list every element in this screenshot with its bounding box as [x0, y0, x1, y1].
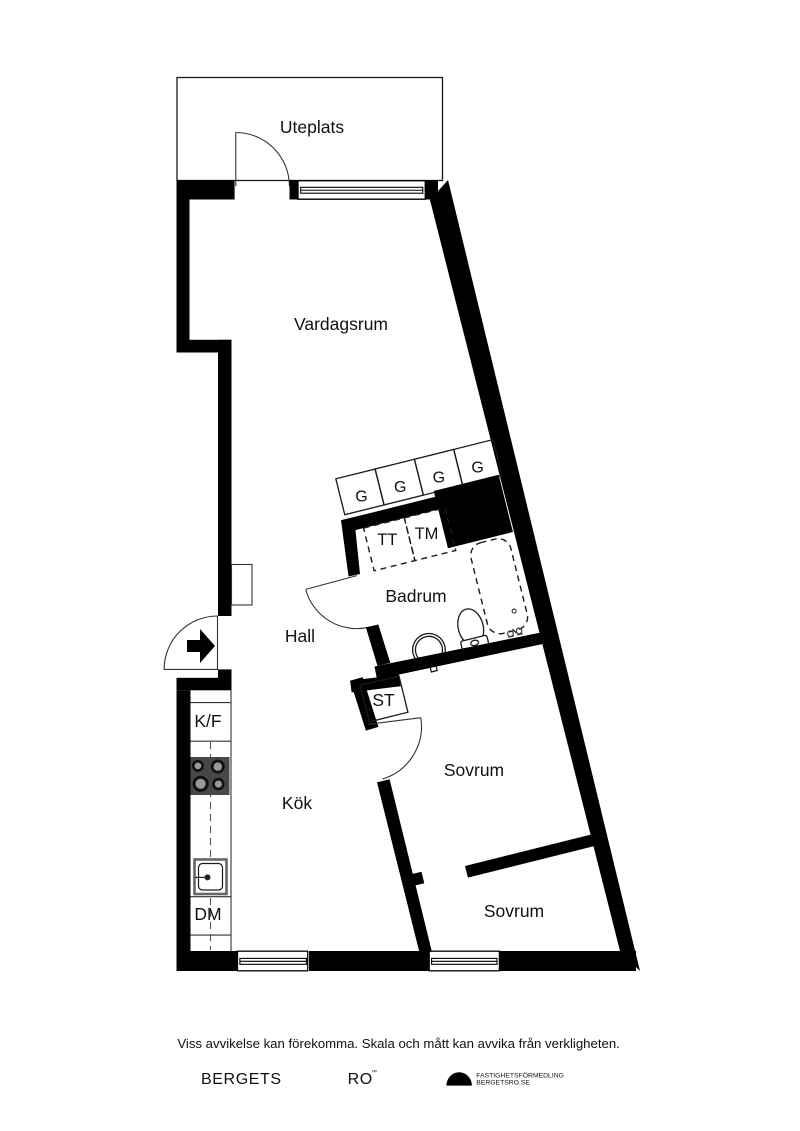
svg-text:Badrum: Badrum: [385, 586, 446, 606]
svg-text:ST: ST: [372, 690, 395, 710]
svg-text:BERGETS: BERGETS: [201, 1071, 282, 1088]
svg-text:Vardagsrum: Vardagsrum: [294, 314, 388, 334]
svg-text:G: G: [355, 489, 367, 506]
svg-text:TM: TM: [415, 525, 439, 543]
svg-text:G: G: [394, 479, 406, 496]
svg-text:G: G: [433, 469, 445, 486]
svg-text:Sovrum: Sovrum: [484, 901, 544, 921]
svg-text:Kök: Kök: [282, 793, 312, 813]
svg-text:FASTIGHETSFÖRMEDLING: FASTIGHETSFÖRMEDLING: [476, 1071, 564, 1079]
svg-text:DM: DM: [194, 904, 221, 924]
svg-text:™: ™: [371, 1069, 377, 1076]
svg-text:Hall: Hall: [285, 626, 315, 646]
svg-text:Sovrum: Sovrum: [444, 760, 504, 780]
svg-text:TT: TT: [377, 531, 397, 549]
svg-text:K/F: K/F: [194, 711, 221, 731]
svg-text:BERGETSRO.SE: BERGETSRO.SE: [476, 1080, 530, 1087]
svg-text:G: G: [471, 460, 483, 477]
svg-text:Uteplats: Uteplats: [280, 117, 344, 137]
svg-text:RO: RO: [348, 1071, 373, 1088]
svg-text:Viss avvikelse kan förekomma.: Viss avvikelse kan förekomma. Skala och …: [177, 1036, 619, 1051]
